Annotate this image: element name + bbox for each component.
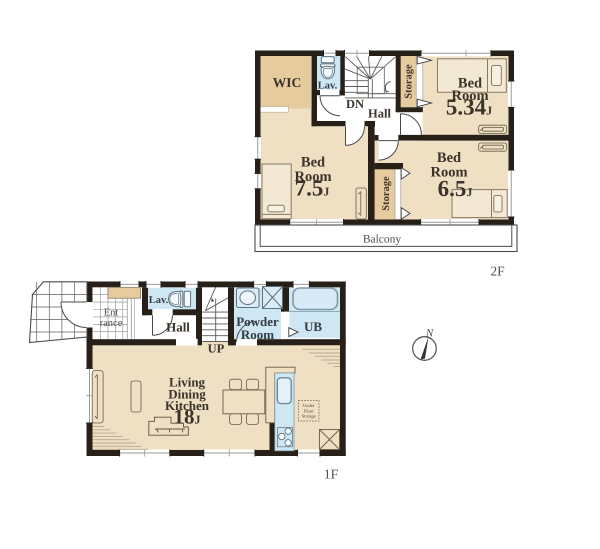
svg-text:Storage: Storage: [381, 176, 392, 211]
svg-text:Ent: Ent: [104, 308, 119, 319]
svg-text:N: N: [425, 328, 434, 340]
svg-text:UP: UP: [208, 342, 225, 356]
svg-text:Room: Room: [241, 327, 274, 342]
svg-text:Hall: Hall: [368, 107, 391, 121]
svg-text:Lav.: Lav.: [149, 295, 169, 306]
svg-text:UB: UB: [304, 319, 322, 334]
svg-text:DN: DN: [346, 97, 364, 111]
svg-text:WIC: WIC: [273, 75, 302, 90]
svg-text:Balcony: Balcony: [363, 234, 402, 246]
svg-text:Storage: Storage: [302, 414, 316, 419]
svg-text:1F: 1F: [324, 467, 339, 482]
svg-text:Under: Under: [303, 403, 315, 408]
svg-text:Floor: Floor: [304, 408, 314, 413]
svg-text:rance: rance: [100, 318, 123, 329]
svg-text:Hall: Hall: [166, 320, 190, 335]
svg-text:2F: 2F: [490, 264, 505, 279]
svg-text:Lav.: Lav.: [318, 81, 338, 92]
svg-text:Storage: Storage: [404, 64, 415, 99]
svg-text:5.34J: 5.34J: [446, 95, 492, 120]
